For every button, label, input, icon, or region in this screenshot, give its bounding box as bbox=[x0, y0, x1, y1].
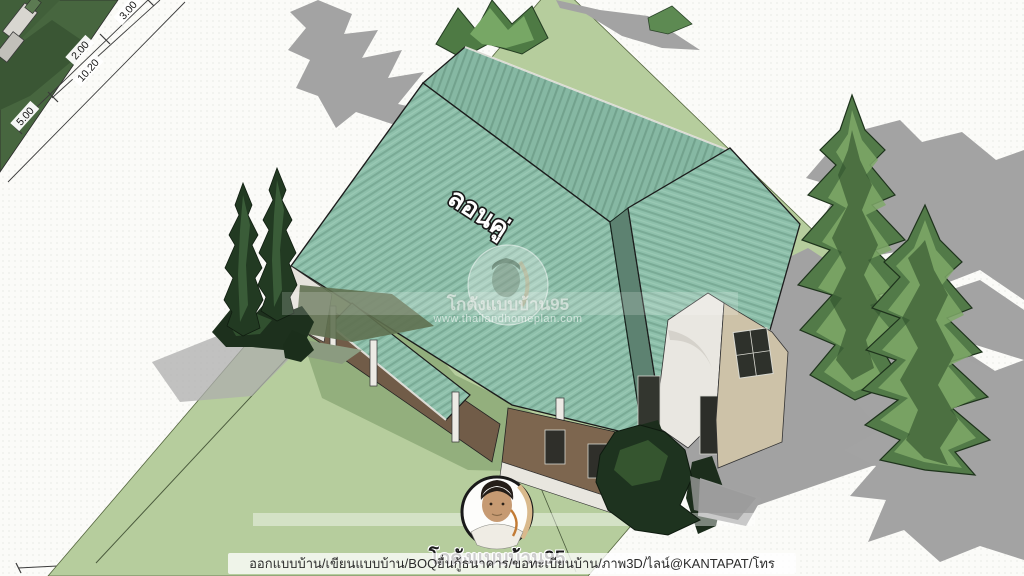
window-mid-1 bbox=[545, 430, 565, 464]
window-wing-left bbox=[638, 376, 660, 426]
brand-avatar bbox=[462, 477, 532, 549]
scene-3d-render: 5.00 10.20 2.00 3.00 bbox=[0, 0, 1024, 576]
render-canvas: 5.00 10.20 2.00 3.00 bbox=[0, 0, 1024, 576]
